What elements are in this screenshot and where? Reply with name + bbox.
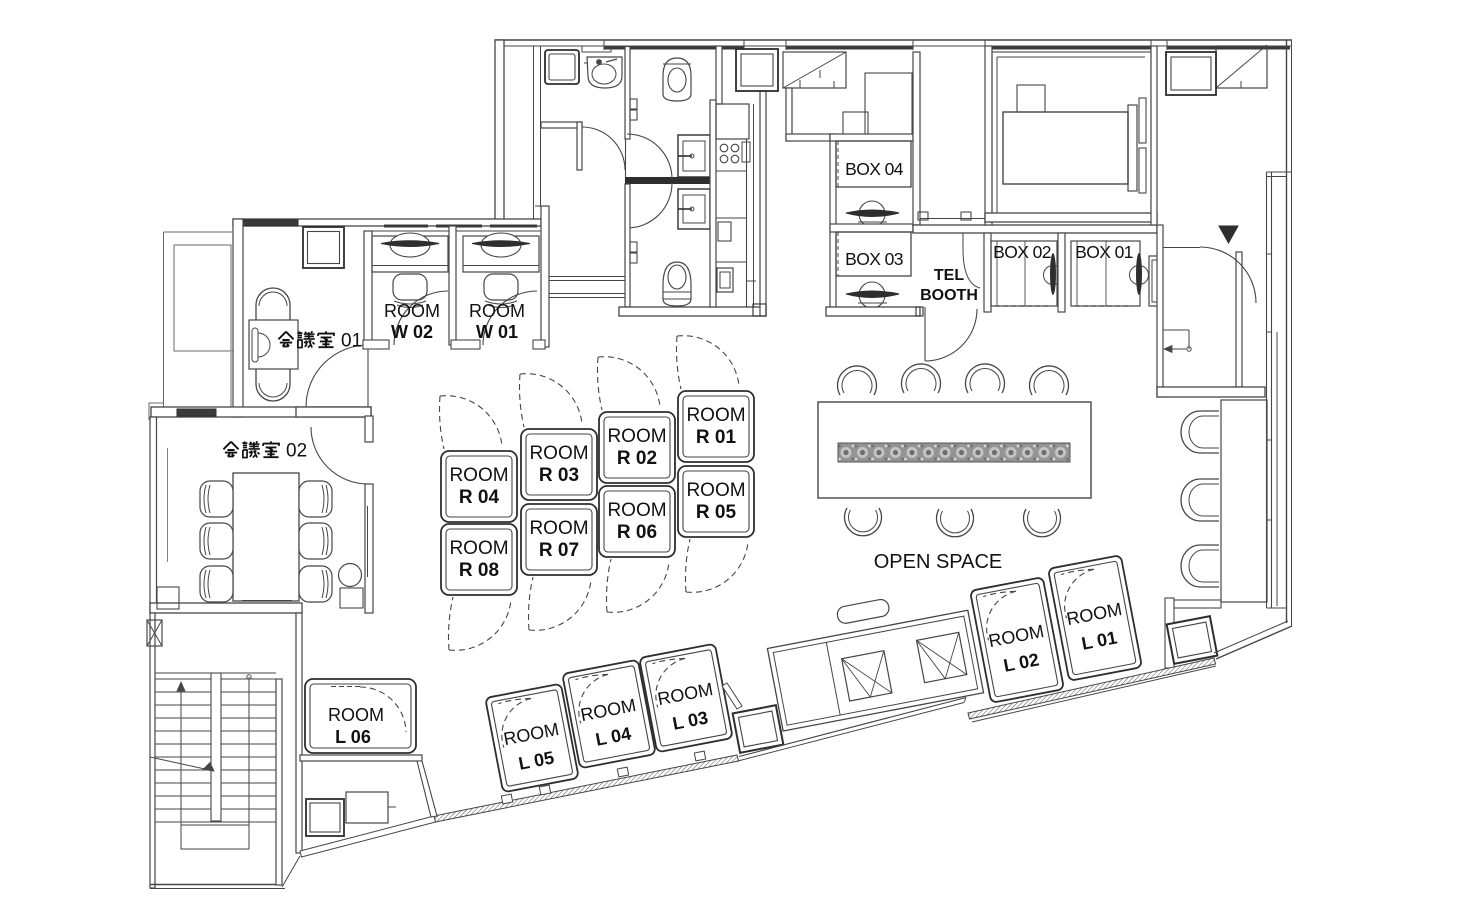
svg-text:W 01: W 01 xyxy=(476,322,518,342)
svg-text:02: 02 xyxy=(286,440,307,461)
svg-text:R 04: R 04 xyxy=(459,487,500,508)
svg-text:BOX 02: BOX 02 xyxy=(993,242,1051,262)
svg-text:ROOM: ROOM xyxy=(686,405,745,426)
svg-text:ROOM: ROOM xyxy=(607,500,666,521)
svg-text:ROOM: ROOM xyxy=(607,426,666,447)
svg-text:ROOM: ROOM xyxy=(449,465,508,486)
svg-text:ROOM: ROOM xyxy=(469,301,525,321)
svg-text:R 08: R 08 xyxy=(459,560,499,581)
svg-text:BOX 03: BOX 03 xyxy=(845,249,903,269)
svg-text:W 02: W 02 xyxy=(391,322,433,342)
svg-text:R 02: R 02 xyxy=(617,448,657,469)
svg-text:OPEN SPACE: OPEN SPACE xyxy=(874,551,1003,573)
svg-text:ROOM: ROOM xyxy=(529,518,588,539)
svg-text:R 05: R 05 xyxy=(696,502,737,523)
svg-text:ROOM: ROOM xyxy=(384,301,440,321)
svg-text:R 01: R 01 xyxy=(696,427,737,448)
svg-text:R 03: R 03 xyxy=(539,465,579,486)
svg-text:TEL: TEL xyxy=(934,267,964,284)
svg-text:BOX 01: BOX 01 xyxy=(1075,242,1133,262)
svg-text:ROOM: ROOM xyxy=(449,538,508,559)
svg-text:R 07: R 07 xyxy=(539,540,579,561)
svg-text:ROOM: ROOM xyxy=(529,443,588,464)
svg-text:01: 01 xyxy=(341,330,362,351)
svg-text:BOOTH: BOOTH xyxy=(920,287,978,304)
svg-text:ROOM: ROOM xyxy=(328,705,384,725)
svg-text:BOX 04: BOX 04 xyxy=(845,159,904,179)
svg-text:ROOM: ROOM xyxy=(686,480,745,501)
svg-text:R 06: R 06 xyxy=(617,522,657,543)
svg-text:L 06: L 06 xyxy=(335,727,371,747)
